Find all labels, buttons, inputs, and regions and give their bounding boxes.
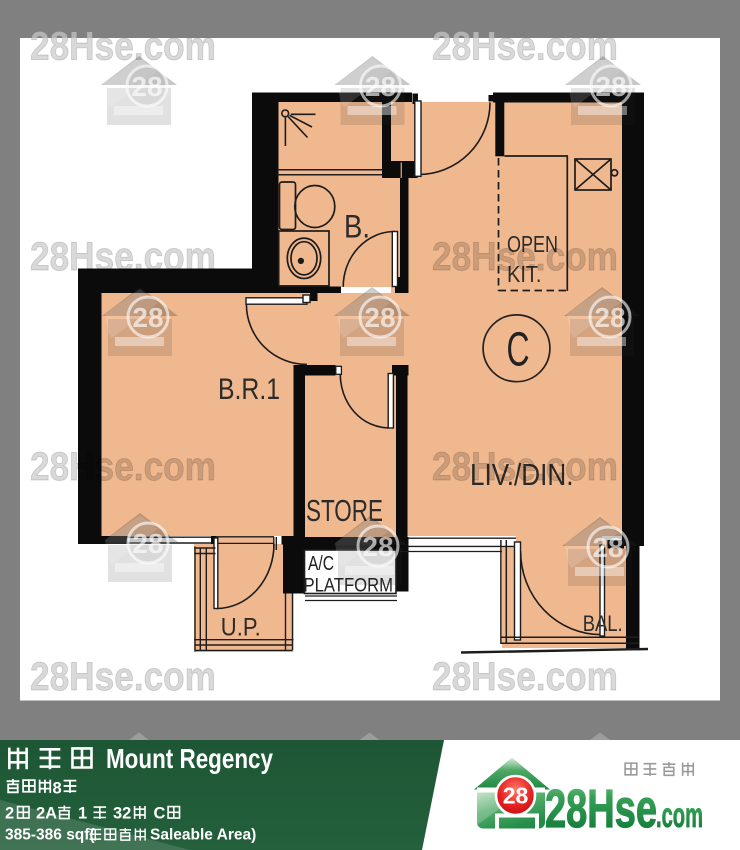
svg-text:1: 1 — [78, 805, 87, 823]
svg-text:32: 32 — [113, 805, 131, 823]
svg-text:2A: 2A — [36, 805, 57, 823]
svg-text:28Hse.com: 28Hse.com — [432, 655, 618, 699]
svg-text:385-386 sqf(: 385-386 sqf( — [5, 827, 95, 844]
svg-text:28: 28 — [503, 783, 529, 809]
svg-text:U.P.: U.P. — [221, 614, 261, 642]
svg-text:C: C — [507, 324, 530, 377]
svg-text:28Hse.com: 28Hse.com — [30, 445, 216, 489]
svg-text:C: C — [154, 805, 166, 823]
svg-text:28Hse.com: 28Hse.com — [432, 235, 618, 279]
svg-text:.com: .com — [656, 796, 703, 835]
svg-text:28Hse: 28Hse — [545, 779, 657, 839]
svg-text:28Hse.com: 28Hse.com — [30, 235, 216, 279]
svg-text:Saleable Area): Saleable Area) — [150, 827, 256, 844]
svg-text:28Hse.com: 28Hse.com — [30, 655, 216, 699]
svg-text:2: 2 — [5, 805, 14, 823]
svg-text:B.: B. — [344, 208, 370, 244]
svg-text:8: 8 — [53, 780, 62, 798]
svg-text:Mount Regency: Mount Regency — [106, 743, 274, 774]
svg-text:28Hse.com: 28Hse.com — [432, 445, 618, 489]
svg-text:B.R.1: B.R.1 — [218, 373, 280, 406]
svg-text:A/C: A/C — [308, 553, 334, 575]
svg-text:BAL.: BAL. — [583, 611, 623, 636]
